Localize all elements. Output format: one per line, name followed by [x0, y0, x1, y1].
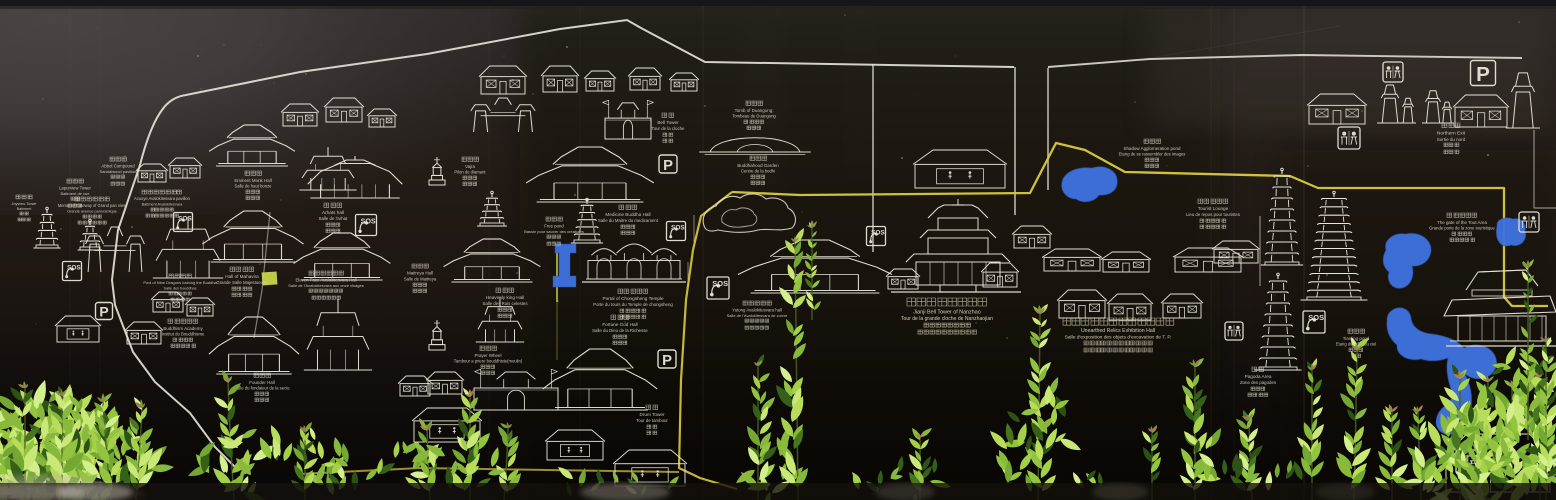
- svg-text:Salle de haut bonze: Salle de haut bonze: [234, 184, 272, 189]
- svg-text:Batiment de vue: Batiment de vue: [60, 191, 90, 196]
- svg-text:Portal of Chongsheng Temple: Portal of Chongsheng Temple: [602, 296, 663, 301]
- svg-text:Free pond: Free pond: [544, 224, 564, 229]
- svg-text:Medicine Buddha Hall: Medicine Buddha Hall: [605, 212, 650, 217]
- svg-text:Tomb of Duangong;: Tomb of Duangong;: [735, 108, 774, 113]
- svg-text:SOS: SOS: [361, 217, 376, 225]
- svg-text:Tour de tambour: Tour de tambour: [636, 418, 668, 423]
- svg-text:Batiment Avalokitesvara: Batiment Avalokitesvara: [142, 203, 184, 207]
- svg-text:The gate of the Tout Area: The gate of the Tout Area: [1437, 220, 1487, 225]
- svg-text:Salle de l'arhat: Salle de l'arhat: [319, 216, 348, 221]
- svg-text:Founder Hall: Founder Hall: [249, 380, 275, 385]
- svg-text:Salle de l'Avalokitesvara de c: Salle de l'Avalokitesvara de cuivre: [727, 313, 789, 318]
- svg-text:Abbot Compound: Abbot Compound: [101, 164, 135, 169]
- svg-text:Salle d'exposition des objets: Salle d'exposition des objets d'excavati…: [1065, 335, 1172, 341]
- svg-text:Tour de la cloche: Tour de la cloche: [652, 126, 686, 131]
- svg-text:Pilon de diamant: Pilon de diamant: [454, 170, 486, 175]
- svg-text:P: P: [663, 158, 673, 174]
- svg-text:Eminent Monk Hall: Eminent Monk Hall: [234, 178, 271, 183]
- svg-text:Sortie du nord: Sortie du nord: [1437, 137, 1466, 142]
- svg-text:SOS: SOS: [178, 216, 192, 223]
- svg-text:Buddhahood Garden: Buddhahood Garden: [737, 163, 779, 168]
- svg-text:Eleven-Face Avalokitesvara Hal: Eleven-Face Avalokitesvara Hall: [295, 278, 356, 283]
- svg-text:Heavenly king Hall: Heavenly king Hall: [486, 295, 524, 300]
- svg-text:SOS: SOS: [1308, 313, 1324, 322]
- svg-text:Buddhism Academy: Buddhism Academy: [163, 326, 203, 331]
- svg-text:Salle des Rois celestes: Salle des Rois celestes: [482, 301, 528, 306]
- svg-text:Bell Tower: Bell Tower: [657, 120, 679, 125]
- svg-text:Tombeau de Duangong: Tombeau de Duangong: [732, 114, 776, 119]
- svg-text:Zone des pagodes: Zone des pagodes: [1240, 380, 1277, 385]
- svg-text:Lieu de repos pour touristes: Lieu de repos pour touristes: [1186, 212, 1241, 217]
- svg-text:Grande avenue panoramique: Grande avenue panoramique: [67, 210, 117, 214]
- svg-text:P: P: [662, 353, 672, 369]
- svg-text:Prayer Wheel: Prayer Wheel: [475, 353, 502, 358]
- svg-text:Shadow Agglomeration pond: Shadow Agglomeration pond: [1124, 146, 1181, 151]
- svg-text:Salle de Maitreya: Salle de Maitreya: [404, 277, 437, 282]
- svg-text:SOS: SOS: [671, 225, 685, 232]
- svg-text:Tambour a priere bouddhiste(mo: Tambour a priere bouddhiste(moulin): [454, 359, 523, 364]
- svg-text:P: P: [1476, 63, 1490, 86]
- svg-text:Salle de l'Avalokitesvara aux: Salle de l'Avalokitesvara aux onze visag…: [288, 283, 363, 288]
- svg-text:Jianji Bell Tower of Nanzhao: Jianji Bell Tower of Nanzhao: [913, 309, 980, 315]
- svg-text:Porte du tours du Temple de ch: Porte du tours du Temple de chongsheng: [593, 302, 673, 307]
- svg-text:Lapurview Tower: Lapurview Tower: [59, 186, 92, 191]
- svg-text:Yutong Avalokitesvara hall: Yutong Avalokitesvara hall: [732, 308, 782, 313]
- svg-text:Tourist Lounge: Tourist Lounge: [1198, 206, 1229, 211]
- svg-text:Pagoda Area: Pagoda Area: [1245, 374, 1272, 379]
- svg-text:Hall of Mahavira: Hall of Mahavira: [225, 274, 259, 279]
- svg-text:SOS: SOS: [67, 265, 81, 272]
- svg-text:Batiment: Batiment: [17, 207, 31, 211]
- svg-text:Salle du fondateur de la secte: Salle du fondateur de la secte: [234, 386, 290, 391]
- svg-text:SOS: SOS: [712, 279, 728, 288]
- svg-text:SOS: SOS: [871, 230, 885, 237]
- svg-text:Centre de la bodhi: Centre de la bodhi: [741, 169, 775, 174]
- svg-text:Drum Tower: Drum Tower: [640, 412, 665, 417]
- svg-text:Sandalwood pavilion: Sandalwood pavilion: [100, 169, 137, 174]
- svg-text:Institut du Bouddhisme: Institut du Bouddhisme: [162, 332, 205, 337]
- svg-text:Vajra: Vajra: [465, 164, 476, 169]
- svg-text:Grande porte de la zone touris: Grande porte de la zone touristique: [1429, 226, 1495, 231]
- svg-text:Maitreya Hall: Maitreya Hall: [407, 271, 433, 276]
- svg-text:Etang de se rassembler des ima: Etang de se rassembler des images: [1119, 152, 1186, 157]
- svg-text:Grande Salle Majestueuse: Grande Salle Majestueuse: [216, 280, 268, 285]
- svg-text:Salle du Dieu de la Richesse: Salle du Dieu de la Richesse: [592, 328, 648, 333]
- svg-text:Bassin pour sauver des creatur: Bassin pour sauver des creatures: [524, 229, 584, 234]
- svg-text:Joyview Tower: Joyview Tower: [11, 201, 37, 206]
- svg-text:Memorial Gateway of Grand pan: Memorial Gateway of Grand pan view: [58, 203, 126, 208]
- svg-text:Salle du Maitre du medicament: Salle du Maitre du medicament: [598, 218, 659, 223]
- svg-text:Arhats hall: Arhats hall: [322, 210, 344, 215]
- svg-text:Unearthed Relics Exhibition Ha: Unearthed Relics Exhibition Hall: [1081, 328, 1155, 334]
- svg-text:Pool of Nine Dragons baining t: Pool of Nine Dragons baining the Buddha: [143, 280, 217, 285]
- svg-text:P: P: [99, 304, 108, 320]
- svg-text:Fortune God Hall: Fortune God Hall: [602, 322, 637, 327]
- svg-text:Northern Exit: Northern Exit: [1437, 131, 1466, 137]
- svg-text:Tour de la grande cloche de Na: Tour de la grande cloche de Nanzhaojian: [901, 316, 993, 322]
- svg-text:Salle des bouddhas: Salle des bouddhas: [164, 286, 197, 290]
- svg-text:Acuoye Avalokitesvara pavilion: Acuoye Avalokitesvara pavilion: [134, 196, 190, 201]
